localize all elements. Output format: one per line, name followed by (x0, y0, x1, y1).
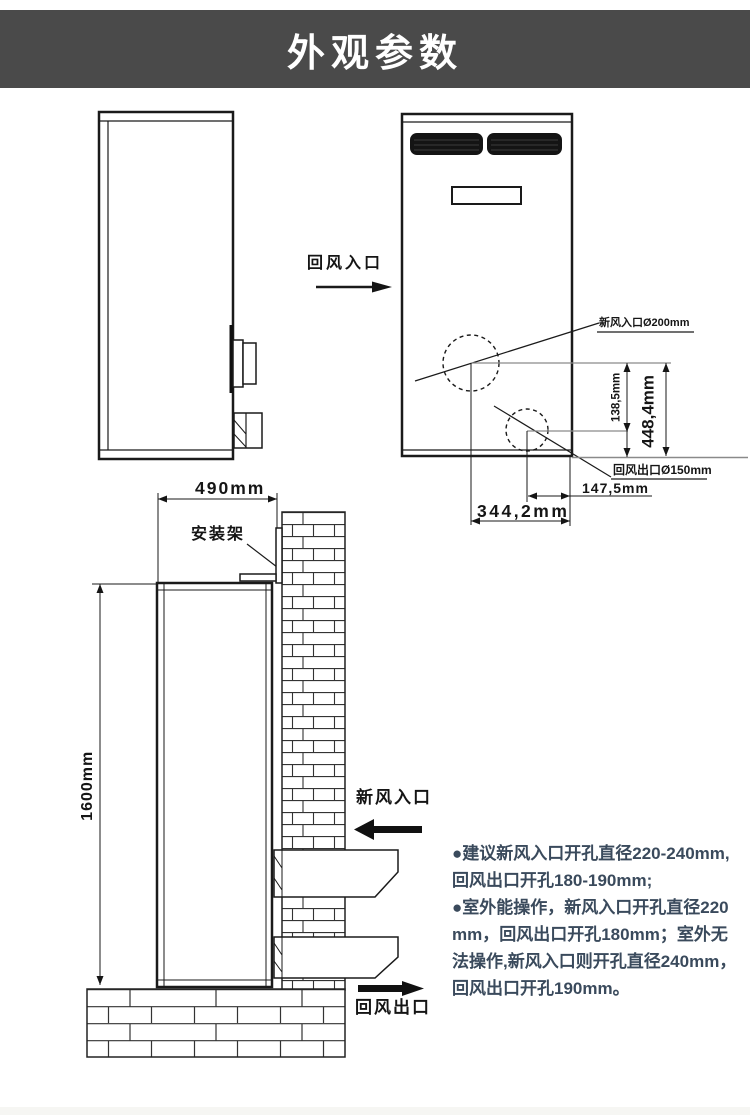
dim-490mm: 490mm (195, 479, 265, 498)
install-view-drawing (87, 493, 424, 1057)
dim-1600mm: 1600mm (79, 741, 97, 831)
fresh-air-duct (274, 850, 398, 897)
return-air-pipe-side (234, 413, 262, 448)
air-grille-left (410, 133, 483, 155)
fresh-air-arrow-shaft (374, 826, 422, 833)
mounting-bracket-arm (240, 574, 276, 581)
mounting-bracket-plate (276, 528, 282, 583)
return-air-arrow-head (402, 981, 424, 996)
cropped-next-section-strip (0, 1107, 750, 1115)
note-line-1: ●建议新风入口开孔直径220-240mm, (452, 839, 750, 864)
dim-448-4mm: 448,4mm (640, 364, 659, 458)
return-air-inlet-label: 回风入口 (307, 255, 383, 273)
fresh-air-arrow-head (354, 819, 374, 840)
side-view-drawing (99, 112, 262, 459)
floor-brick-base (87, 989, 345, 1057)
note-line-3: ●室外能操作，新风入口开孔直径220 (452, 893, 750, 918)
air-grille-right (487, 133, 562, 155)
fresh-air-inlet-label: 新风入口 (356, 789, 432, 808)
dim-344-2mm: 344,2mm (477, 502, 569, 521)
return-air-outlet-label: 回风出口 (355, 999, 431, 1018)
mounting-bracket-label: 安装架 (191, 526, 245, 544)
fresh-air-hole-label: 新风入口Ø200mm (599, 317, 689, 329)
dim-138-5mm: 138,5mm (611, 361, 624, 433)
display-panel (452, 187, 521, 204)
note-line-5: 法操作,新风入口则开孔直径240mm， (452, 947, 750, 972)
note-line-6: 回风出口开孔190mm。 (452, 974, 750, 999)
note-line-2: 回风出口开孔180-190mm; (452, 866, 750, 891)
note-line-4: mm，回风出口开孔180mm；室外无 (452, 920, 750, 945)
return-air-arrow-shaft (358, 985, 402, 992)
appearance-parameters-page: 外观参数 (0, 0, 750, 1115)
unit-side-profile (157, 583, 272, 987)
return-air-inlet-arrow (372, 282, 392, 293)
return-air-duct (274, 937, 398, 978)
dim-147-5mm: 147,5mm (582, 481, 649, 496)
fresh-air-pipe-side (233, 340, 256, 387)
return-air-outlet-hole-label: 回风出口Ø150mm (613, 464, 712, 477)
wall-brick-column (282, 512, 345, 990)
